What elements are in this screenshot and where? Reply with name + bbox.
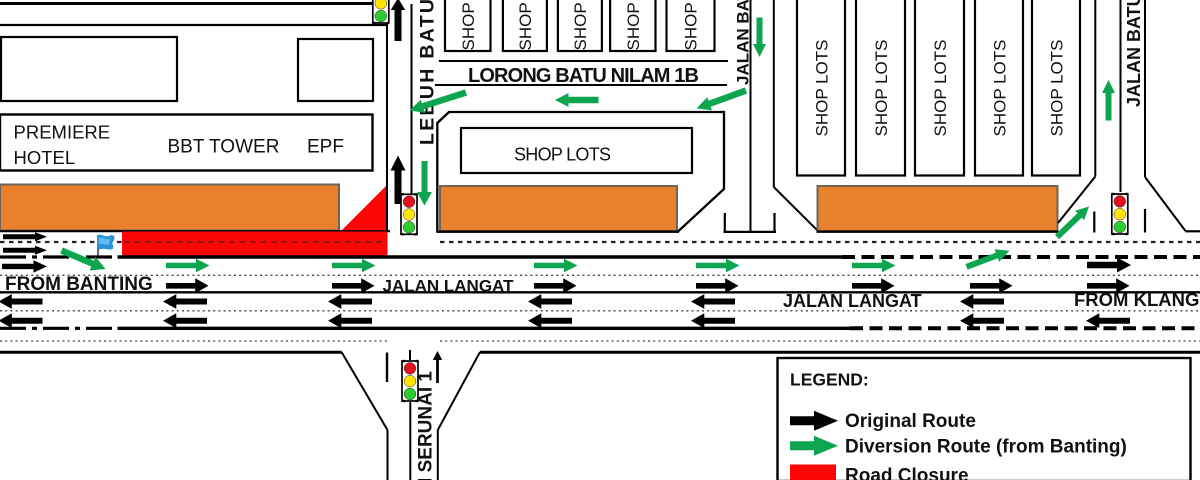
svg-text:Diversion Route (from Banting): Diversion Route (from Banting) — [845, 437, 1127, 458]
svg-text:SHOP LOTS: SHOP LOTS — [1048, 40, 1067, 137]
svg-text:SHOP: SHOP — [516, 2, 535, 50]
svg-text:JALAN SERUNAI 1: JALAN SERUNAI 1 — [416, 371, 437, 480]
svg-text:Road Closure: Road Closure — [845, 466, 969, 480]
svg-text:Original Route: Original Route — [845, 411, 976, 432]
svg-text:LEBUH BATU NILAM: LEBUH BATU NILAM — [417, 0, 439, 145]
svg-text:JALAN BATU NILAM: JALAN BATU NILAM — [734, 0, 753, 85]
svg-text:FROM BANTING: FROM BANTING — [5, 274, 153, 295]
svg-text:SHOP: SHOP — [682, 2, 701, 50]
svg-text:JALAN LANGAT: JALAN LANGAT — [383, 277, 515, 296]
svg-text:PREMIERE: PREMIERE — [14, 122, 111, 143]
svg-text:FROM KLANG: FROM KLANG — [1074, 289, 1199, 310]
svg-text:SHOP LOTS: SHOP LOTS — [514, 145, 611, 165]
svg-text:SHOP: SHOP — [571, 2, 590, 50]
svg-text:SHOP: SHOP — [459, 2, 478, 50]
svg-text:SHOP LOTS: SHOP LOTS — [991, 40, 1010, 137]
svg-text:SHOP: SHOP — [624, 2, 643, 50]
svg-text:SHOP LOTS: SHOP LOTS — [931, 40, 950, 137]
svg-text:BBT TOWER: BBT TOWER — [168, 137, 280, 158]
svg-text:SHOP LOTS: SHOP LOTS — [813, 40, 832, 137]
svg-text:LEGEND:: LEGEND: — [790, 370, 869, 390]
svg-text:SHOP LOTS: SHOP LOTS — [872, 40, 891, 137]
svg-text:HOTEL: HOTEL — [14, 147, 76, 168]
svg-text:LORONG BATU NILAM 1B: LORONG BATU NILAM 1B — [468, 65, 699, 87]
svg-text:EPF: EPF — [307, 137, 344, 158]
svg-text:JALAN BATU NILAM: JALAN BATU NILAM — [1124, 0, 1144, 107]
svg-text:JALAN LANGAT: JALAN LANGAT — [783, 291, 922, 311]
